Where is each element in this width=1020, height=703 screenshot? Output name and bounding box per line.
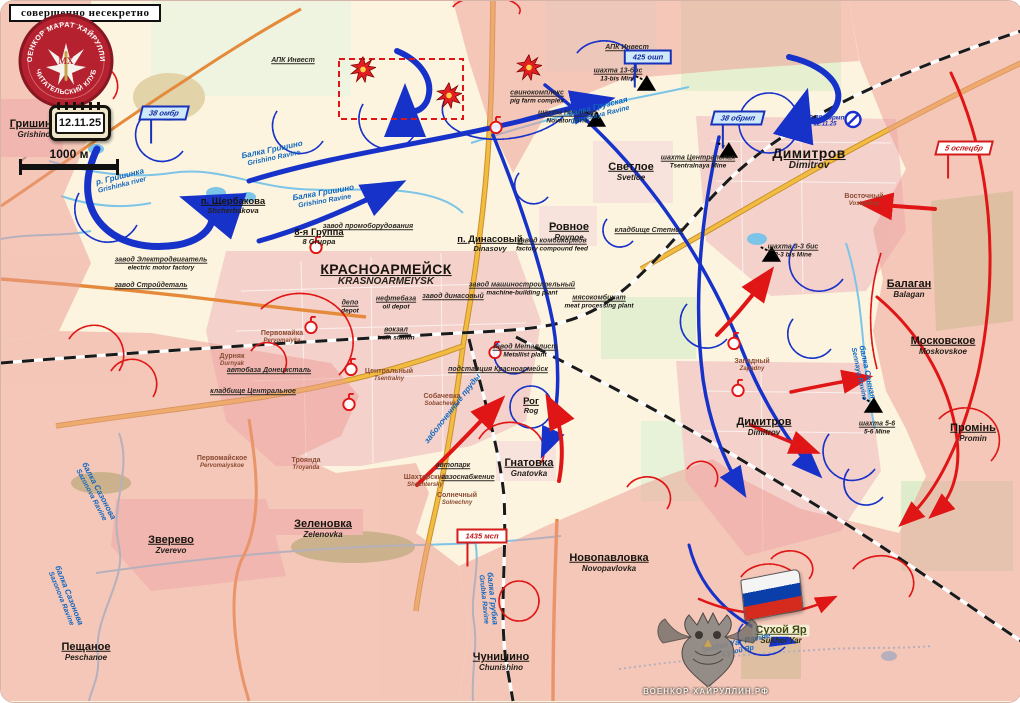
base-map-svg: .arcB{stroke:#1732c8;fill:none;stroke-wi…	[1, 1, 1020, 702]
war-map: .arcB{stroke:#1732c8;fill:none;stroke-wi…	[0, 0, 1020, 703]
